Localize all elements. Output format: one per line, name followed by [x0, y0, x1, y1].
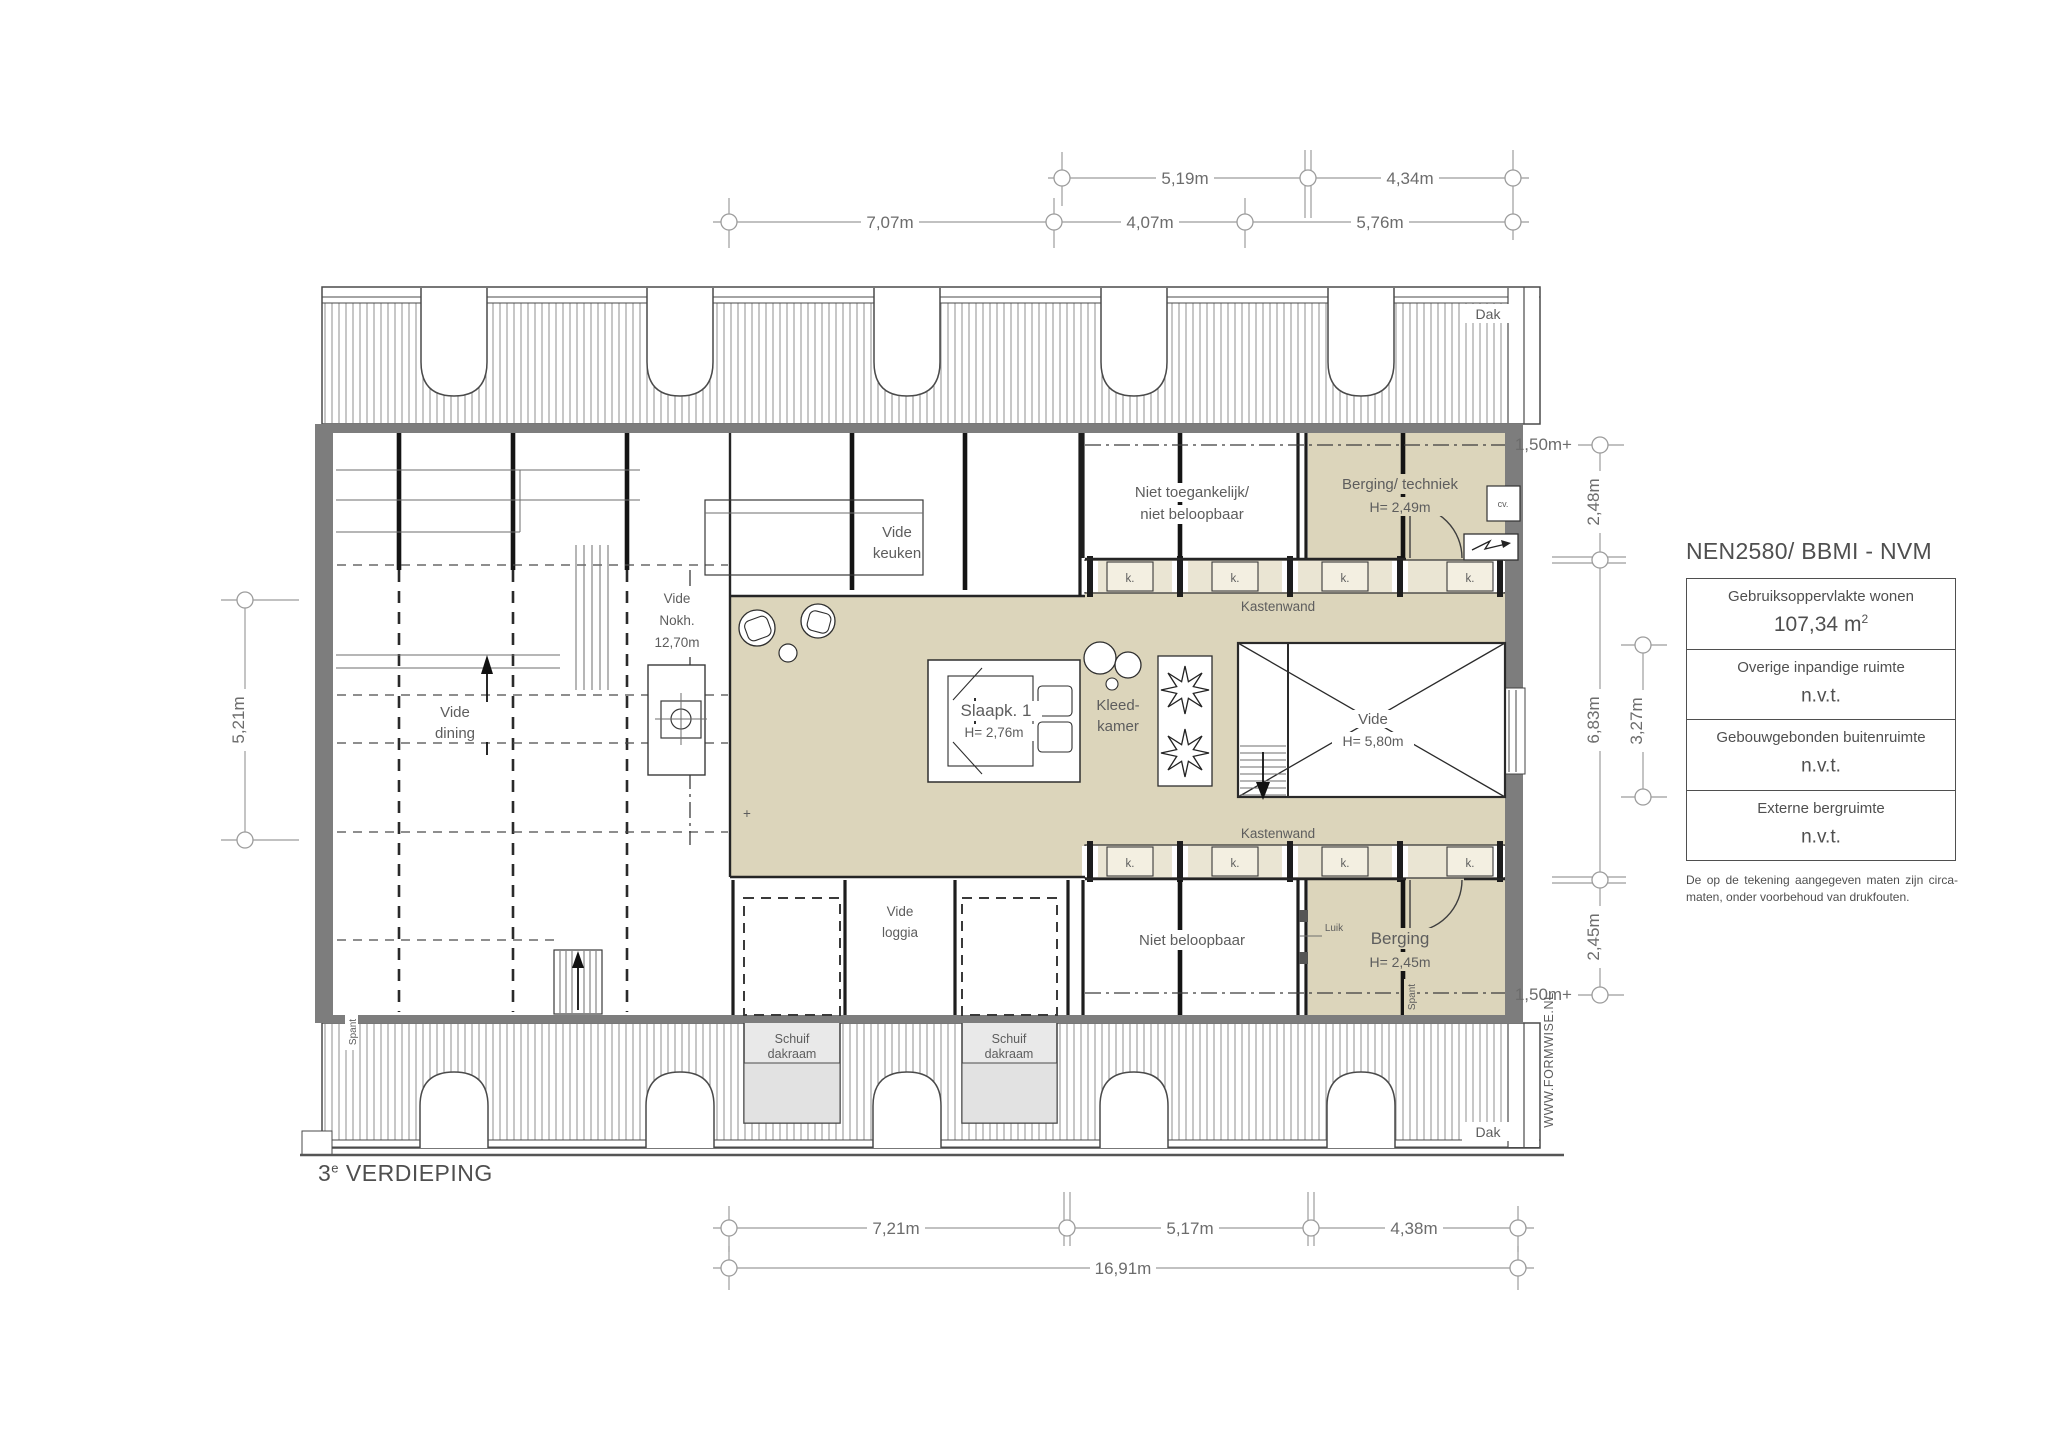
- dim-label: 7,21m: [872, 1219, 919, 1238]
- room-height-berging: H= 2,45m: [1369, 954, 1430, 970]
- nen2580-table: Gebruiksoppervlakte wonen 107,34 m2 Over…: [1686, 578, 1956, 861]
- dim-label: 16,91m: [1095, 1259, 1152, 1278]
- room-label-vide-nok: 12,70m: [654, 635, 699, 650]
- window-right: [1503, 688, 1525, 774]
- watermark: WWW.FORMWISE.NL: [1542, 992, 1556, 1127]
- room-height-vide-center: H= 5,80m: [1342, 733, 1403, 749]
- cv-label: cv.: [1498, 499, 1509, 509]
- dim-label: 5,19m: [1161, 169, 1208, 188]
- k-label: k.: [1126, 858, 1135, 870]
- row-label: Gebouwgebonden buitenruimte: [1691, 729, 1951, 746]
- floor-plan-page: Dak Schuif dakraam Schuif dakraam: [0, 0, 2048, 1448]
- svg-text:6,83m: 6,83m: [1584, 696, 1603, 743]
- room-label-vide-dining: dining: [435, 725, 475, 742]
- skylight-2: Schuif dakraam: [962, 1017, 1057, 1123]
- svg-text:Spant: Spant: [348, 1019, 359, 1045]
- stair-lines-nok: [576, 545, 608, 690]
- nen2580-panel: NEN2580/ BBMI - NVM Gebruiksoppervlakte …: [1686, 538, 1958, 906]
- skylight-label: dakraam: [768, 1047, 817, 1061]
- room-height-slaapk1: H= 2,76m: [965, 725, 1024, 740]
- roof-band-bottom: Schuif dakraam Schuif dakraam Dak: [300, 1017, 1564, 1155]
- svg-text:Spant: Spant: [1407, 984, 1418, 1010]
- dim-right-inner-label: 3,27m: [1627, 690, 1646, 752]
- dak-label-bottom: Dak: [1476, 1124, 1502, 1140]
- k-label: k.: [1231, 858, 1240, 870]
- dim-right-label: 2,45m: [1584, 906, 1603, 968]
- room-label-vide-loggia: Vide: [887, 904, 914, 919]
- electric-panel: [1464, 534, 1518, 560]
- skylight-label: Schuif: [992, 1032, 1027, 1046]
- table-row: Gebruiksoppervlakte wonen 107,34 m2: [1687, 579, 1955, 649]
- skylight-label: Schuif: [775, 1032, 810, 1046]
- room-label-vide-center: Vide: [1358, 711, 1388, 728]
- dim-label: 4,34m: [1386, 169, 1433, 188]
- row-label: Overige inpandige ruimte: [1691, 659, 1951, 676]
- svg-text:5,21m: 5,21m: [229, 696, 248, 743]
- stair-bottom-left: [554, 950, 602, 1014]
- row-label: Externe bergruimte: [1691, 800, 1951, 817]
- room-label-vide-keuken: keuken: [873, 545, 921, 562]
- squared-sup: 2: [1861, 612, 1868, 626]
- floor-title: 3e VERDIEPING: [318, 1160, 493, 1187]
- skylight-1: Schuif dakraam: [744, 1017, 840, 1123]
- svg-text:2,45m: 2,45m: [1584, 913, 1603, 960]
- cabinet-strip-top: [1082, 556, 1508, 597]
- table-row: Externe bergruimte n.v.t.: [1687, 790, 1955, 860]
- k-label: k.: [1341, 858, 1350, 870]
- row-value: n.v.t.: [1691, 683, 1951, 707]
- room-label-berging-techniek: Berging/ techniek: [1342, 476, 1458, 493]
- row-value: n.v.t.: [1691, 824, 1951, 848]
- svg-text:2,48m: 2,48m: [1584, 478, 1603, 525]
- spant-label-right: Spant: [1404, 979, 1418, 1015]
- room-height-berging-techniek: H= 2,49m: [1369, 499, 1430, 515]
- room-label-vide-dining: Vide: [440, 704, 470, 721]
- dim-right-label: 2,48m: [1584, 471, 1603, 533]
- ridge-column: [648, 665, 707, 775]
- room-label-slaapk1: Slaapk. 1: [961, 701, 1032, 720]
- svg-text:WWW.FORMWISE.NL: WWW.FORMWISE.NL: [1542, 992, 1556, 1127]
- spant-label-left: Spant: [345, 1014, 359, 1050]
- k-label: k.: [1341, 573, 1350, 585]
- kastenwand-label-bottom: Kastenwand: [1241, 826, 1315, 841]
- row-label: Gebruiksoppervlakte wonen: [1691, 588, 1951, 605]
- room-label-niet-toegankelijk: niet beloopbaar: [1140, 506, 1243, 523]
- row-value: n.v.t.: [1691, 753, 1951, 777]
- room-label-niet-beloopbaar: Niet beloopbaar: [1139, 932, 1245, 949]
- room-label-kleedkamer: Kleed-: [1096, 697, 1139, 714]
- dim-label: 7,07m: [866, 213, 913, 232]
- k-label: k.: [1126, 573, 1135, 585]
- kastenwand-label-top: Kastenwand: [1241, 599, 1315, 614]
- luik-label: Luik: [1325, 923, 1344, 934]
- row-value: 107,34 m2: [1691, 612, 1951, 637]
- dim-label: 5,17m: [1166, 1219, 1213, 1238]
- table-row: Overige inpandige ruimte n.v.t.: [1687, 649, 1955, 719]
- dim-left-label: 5,21m: [229, 689, 248, 751]
- survey-plus-mark: +: [743, 806, 751, 821]
- room-label-vide-loggia: loggia: [882, 925, 919, 940]
- dim-label: 4,07m: [1126, 213, 1173, 232]
- disclaimer-text: De op de tekening aangegeven maten zijn …: [1686, 872, 1958, 906]
- k-label: k.: [1466, 858, 1475, 870]
- dim-right-label: 6,83m: [1584, 689, 1603, 751]
- room-label-vide-nok: Nokh.: [659, 613, 694, 628]
- room-label-kleedkamer: kamer: [1097, 718, 1139, 735]
- dak-label-top: Dak: [1476, 306, 1502, 322]
- dim-level-label: 1,50m+: [1515, 435, 1572, 454]
- svg-text:3,27m: 3,27m: [1627, 697, 1646, 744]
- nen2580-heading: NEN2580/ BBMI - NVM: [1686, 538, 1958, 565]
- room-label-vide-keuken: Vide: [882, 524, 912, 541]
- room-label-niet-toegankelijk: Niet toegankelijk/: [1135, 484, 1250, 501]
- cabinet-strip-bottom: [1082, 841, 1508, 882]
- dim-label: 5,76m: [1356, 213, 1403, 232]
- dim-label: 4,38m: [1390, 1219, 1437, 1238]
- table-row: Gebouwgebonden buitenruimte n.v.t.: [1687, 719, 1955, 789]
- k-label: k.: [1231, 573, 1240, 585]
- skylight-label: dakraam: [985, 1047, 1034, 1061]
- room-label-vide-nok: Vide: [664, 591, 691, 606]
- cv-unit: cv.: [1487, 486, 1520, 521]
- k-label: k.: [1466, 573, 1475, 585]
- wardrobe-plants: [1158, 656, 1212, 786]
- roof-band-top: Dak: [322, 287, 1540, 424]
- room-label-berging: Berging: [1371, 929, 1430, 948]
